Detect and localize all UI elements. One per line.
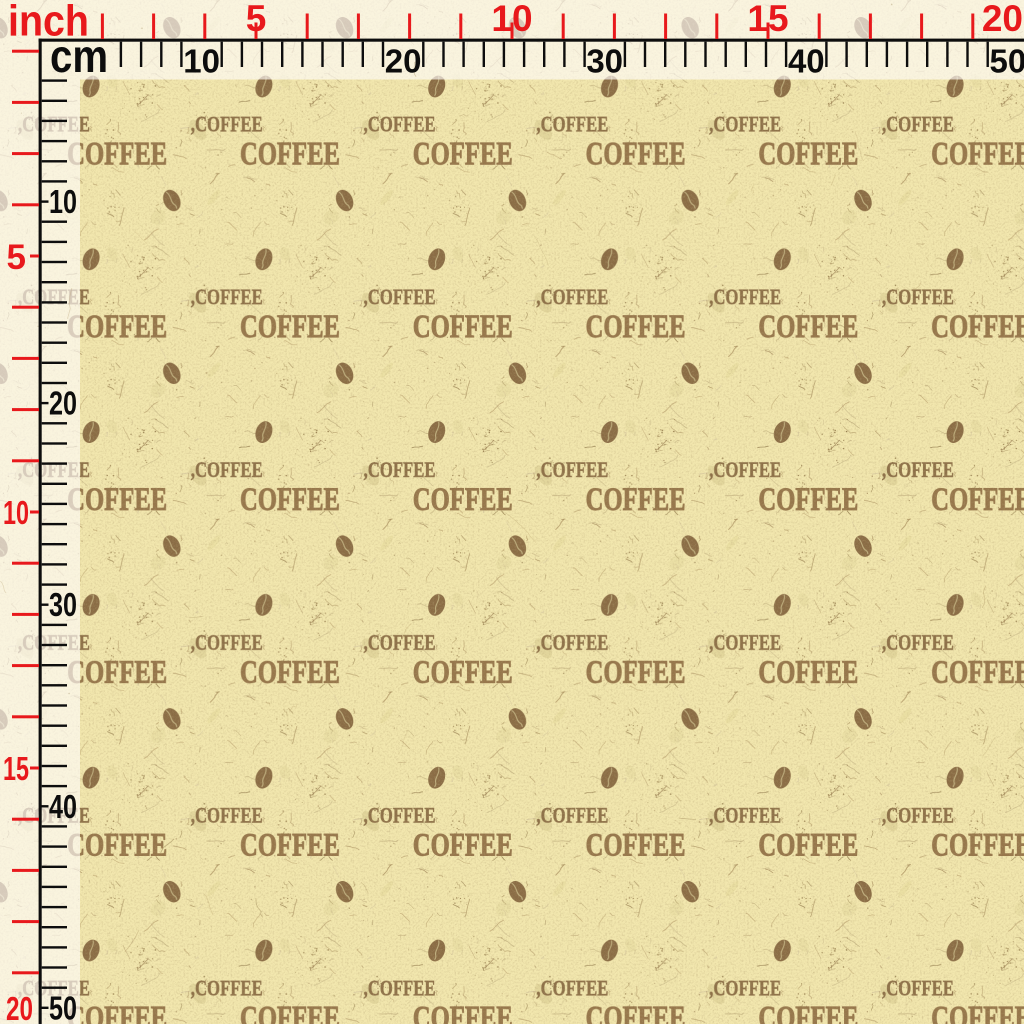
svg-text:5: 5	[246, 0, 267, 39]
svg-text:30: 30	[586, 43, 623, 80]
svg-text:15: 15	[747, 0, 788, 39]
svg-text:30: 30	[49, 586, 77, 623]
svg-text:10: 10	[183, 43, 220, 80]
svg-text:40: 40	[788, 43, 825, 80]
svg-text:20: 20	[6, 990, 33, 1024]
svg-text:10: 10	[3, 494, 29, 531]
svg-text:5: 5	[7, 238, 26, 277]
svg-text:cm: cm	[50, 30, 108, 82]
svg-text:15: 15	[3, 750, 29, 787]
svg-text:40: 40	[49, 788, 77, 825]
svg-text:10: 10	[49, 183, 77, 220]
svg-text:50: 50	[990, 43, 1024, 80]
svg-text:20: 20	[385, 43, 422, 80]
svg-text:20: 20	[49, 385, 77, 422]
svg-text:20: 20	[982, 0, 1023, 39]
svg-text:50: 50	[49, 989, 77, 1024]
svg-text:10: 10	[491, 0, 532, 39]
